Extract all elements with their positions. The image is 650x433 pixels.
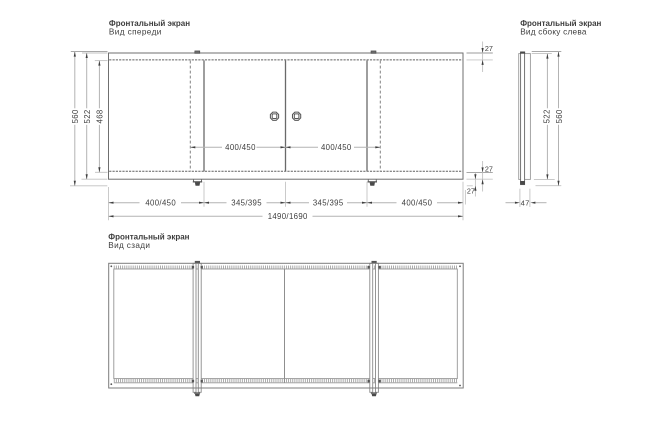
svg-text:468: 468: [96, 109, 105, 123]
svg-text:560: 560: [555, 109, 564, 123]
svg-text:522: 522: [542, 109, 551, 123]
svg-text:400/450: 400/450: [402, 199, 433, 208]
svg-text:47: 47: [521, 199, 530, 208]
svg-text:400/450: 400/450: [145, 199, 176, 208]
svg-text:345/395: 345/395: [313, 199, 344, 208]
svg-text:345/395: 345/395: [231, 199, 262, 208]
svg-text:400/450: 400/450: [225, 143, 256, 152]
svg-text:27: 27: [467, 187, 475, 196]
svg-text:560: 560: [71, 109, 80, 123]
svg-text:27: 27: [485, 164, 493, 173]
svg-text:Вид сзади: Вид сзади: [108, 241, 150, 250]
svg-text:27: 27: [485, 44, 493, 53]
svg-text:Вид спереди: Вид спереди: [109, 28, 162, 37]
svg-text:522: 522: [83, 109, 92, 123]
svg-text:Вид сбоку слева: Вид сбоку слева: [520, 28, 587, 37]
svg-text:1490/1690: 1490/1690: [268, 212, 308, 221]
svg-text:400/450: 400/450: [321, 143, 352, 152]
